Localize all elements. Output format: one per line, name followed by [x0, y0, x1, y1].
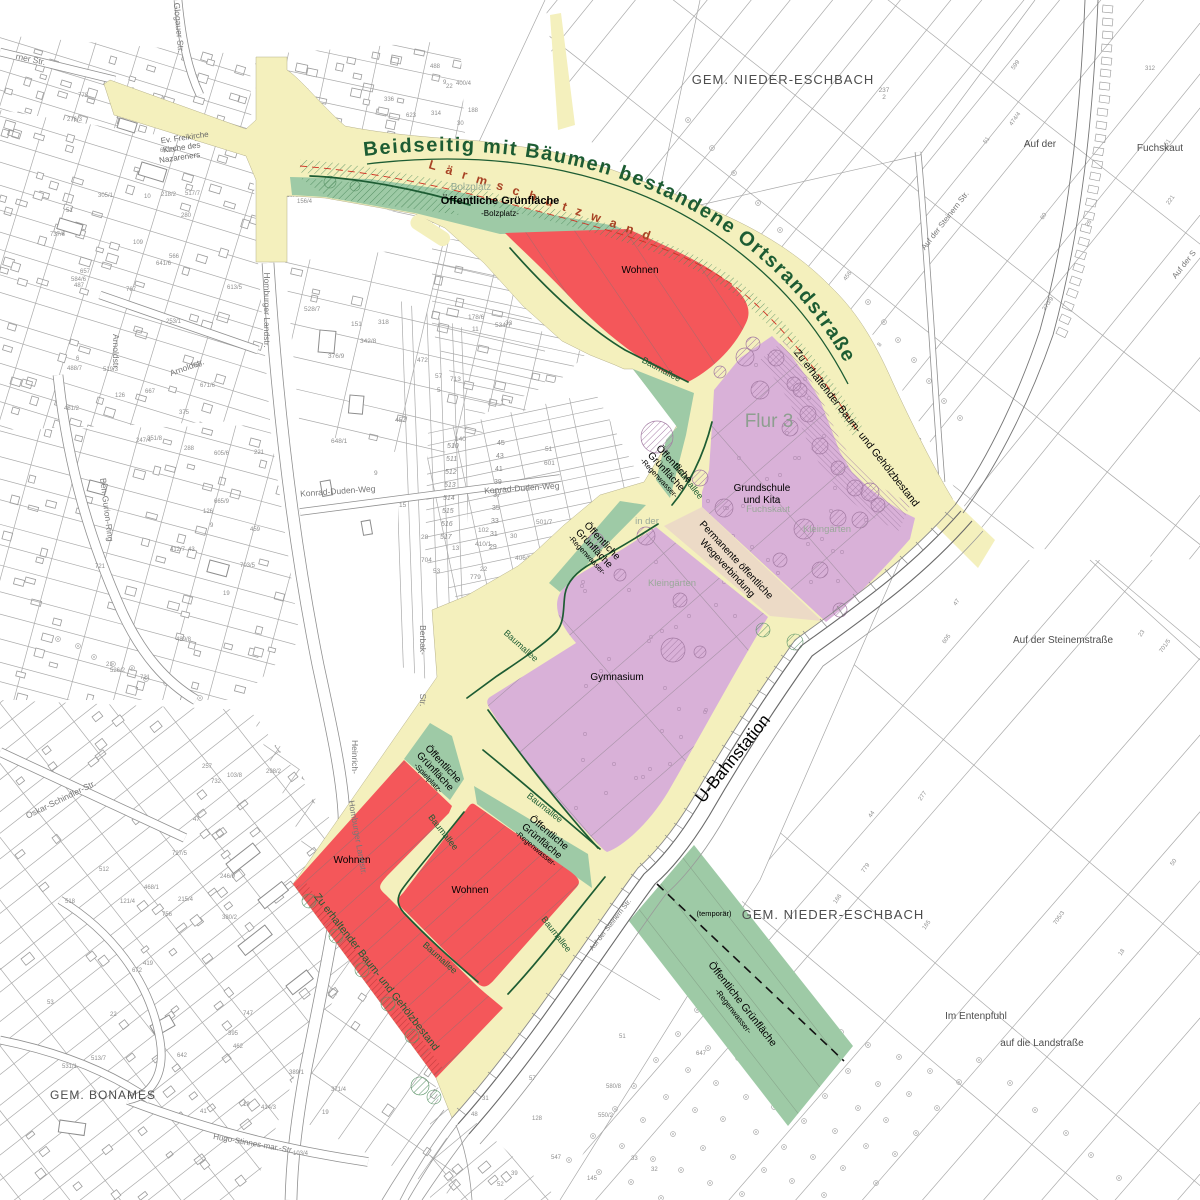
svg-text:721: 721 [140, 675, 151, 681]
svg-text:Auf der: Auf der [1024, 139, 1057, 150]
svg-text:2: 2 [882, 94, 886, 101]
svg-text:151: 151 [351, 321, 362, 328]
svg-text:156/4: 156/4 [297, 199, 313, 205]
svg-text:671/6: 671/6 [200, 383, 216, 389]
svg-text:Auf der Steinemstraße: Auf der Steinemstraße [1013, 635, 1113, 646]
svg-text:103/8: 103/8 [227, 773, 243, 779]
svg-text:580/8: 580/8 [606, 1084, 622, 1090]
svg-text:288: 288 [184, 446, 195, 452]
svg-text:GEM. NIEDER-ESCHBACH: GEM. NIEDER-ESCHBACH [692, 72, 875, 87]
svg-text:395: 395 [228, 1031, 239, 1037]
svg-text:30: 30 [510, 533, 518, 540]
svg-text:Fuchskaut: Fuchskaut [1137, 143, 1183, 154]
svg-text:51: 51 [545, 446, 553, 453]
svg-text:732: 732 [211, 779, 222, 785]
svg-text:737/6: 737/6 [50, 232, 66, 238]
svg-text:501/7: 501/7 [536, 519, 553, 526]
svg-text:in der: in der [635, 516, 659, 527]
svg-text:314: 314 [431, 111, 442, 117]
svg-text:218/2: 218/2 [161, 192, 177, 198]
svg-text:389/1: 389/1 [289, 1070, 305, 1076]
svg-text:481/2: 481/2 [64, 406, 80, 412]
svg-text:22: 22 [110, 1012, 117, 1018]
svg-text:Heinrich-: Heinrich- [350, 740, 360, 774]
svg-text:312: 312 [1145, 66, 1156, 72]
svg-text:39: 39 [511, 1171, 518, 1177]
svg-text:657: 657 [80, 269, 91, 275]
svg-text:30: 30 [457, 121, 464, 127]
svg-text:489/8: 489/8 [176, 637, 192, 643]
svg-text:257: 257 [202, 764, 213, 770]
svg-text:31: 31 [482, 1096, 489, 1102]
svg-text:15: 15 [399, 502, 407, 509]
svg-text:512: 512 [445, 469, 457, 476]
svg-text:57: 57 [435, 373, 443, 380]
svg-text:Im Entenpfuhl: Im Entenpfuhl [945, 1011, 1007, 1022]
svg-text:514: 514 [443, 495, 455, 502]
svg-text:414/3: 414/3 [261, 1105, 277, 1111]
svg-text:140: 140 [455, 436, 466, 443]
svg-text:472: 472 [417, 357, 428, 364]
svg-text:19: 19 [223, 591, 230, 597]
svg-text:126: 126 [115, 393, 126, 399]
svg-text:Bolzplatz: Bolzplatz [451, 182, 492, 193]
svg-text:336: 336 [384, 97, 395, 103]
svg-text:400/4: 400/4 [456, 81, 472, 87]
svg-text:53: 53 [47, 1000, 54, 1006]
svg-text:462: 462 [233, 1044, 244, 1050]
svg-text:513: 513 [444, 482, 456, 489]
svg-text:376/9: 376/9 [328, 353, 345, 360]
svg-text:Grundschule: Grundschule [734, 483, 791, 494]
svg-text:515: 515 [442, 508, 454, 515]
svg-text:642: 642 [177, 1053, 188, 1059]
svg-text:721: 721 [95, 564, 106, 570]
svg-text:103/4: 103/4 [293, 1151, 309, 1157]
svg-text:Kleingärten: Kleingärten [648, 578, 696, 589]
svg-text:221: 221 [254, 450, 265, 456]
svg-text:178/6: 178/6 [468, 314, 485, 321]
svg-text:280: 280 [181, 213, 192, 219]
svg-text:Flur 3: Flur 3 [745, 411, 794, 432]
svg-text:19: 19 [322, 1110, 329, 1116]
svg-text:526/2: 526/2 [110, 668, 126, 674]
svg-text:GEM. NIEDER-ESCHBACH: GEM. NIEDER-ESCHBACH [742, 907, 925, 922]
svg-text:380/2: 380/2 [222, 915, 238, 921]
svg-text:647: 647 [696, 1051, 707, 1057]
svg-text:126: 126 [203, 509, 214, 515]
svg-text:305/1: 305/1 [98, 193, 114, 199]
svg-text:672: 672 [132, 968, 143, 974]
svg-text:512: 512 [99, 867, 110, 873]
svg-text:41: 41 [495, 466, 503, 473]
svg-text:566: 566 [169, 254, 180, 260]
svg-text:511: 511 [446, 456, 457, 463]
svg-text:9: 9 [374, 470, 378, 477]
svg-text:Öffentliche Grünfläche: Öffentliche Grünfläche [441, 194, 560, 207]
svg-text:51: 51 [66, 208, 73, 214]
svg-text:375: 375 [179, 410, 190, 416]
svg-text:128: 128 [532, 1116, 543, 1122]
svg-text:727/5: 727/5 [172, 851, 188, 857]
svg-text:747: 747 [243, 1011, 254, 1017]
svg-text:703/5: 703/5 [240, 563, 256, 569]
svg-text:51: 51 [619, 1034, 626, 1040]
svg-text:459: 459 [250, 527, 261, 533]
svg-text:665/9: 665/9 [214, 499, 230, 505]
svg-text:246/9: 246/9 [220, 874, 236, 880]
svg-text:667: 667 [145, 389, 156, 395]
svg-text:Gymnasium: Gymnasium [590, 672, 643, 683]
svg-text:Str.: Str. [418, 694, 428, 707]
svg-text:43: 43 [188, 547, 195, 553]
svg-text:371/4: 371/4 [331, 1087, 347, 1093]
svg-text:29: 29 [489, 544, 497, 551]
svg-text:517/7: 517/7 [185, 191, 201, 197]
svg-text:641/6: 641/6 [156, 261, 172, 267]
svg-text:33: 33 [631, 1156, 638, 1162]
svg-text:767: 767 [126, 287, 137, 293]
svg-text:Fuchskaut: Fuchskaut [746, 504, 790, 515]
svg-text:550/2: 550/2 [598, 1113, 614, 1119]
svg-text:237: 237 [879, 87, 890, 94]
svg-text:GEM. BONAMES: GEM. BONAMES [50, 1088, 156, 1102]
svg-text:109: 109 [133, 240, 144, 246]
svg-text:Berbak-: Berbak- [418, 625, 428, 655]
svg-text:31: 31 [490, 531, 498, 538]
svg-text:318: 318 [378, 319, 389, 326]
svg-text:121/4: 121/4 [120, 899, 136, 905]
svg-text:342/8: 342/8 [360, 338, 377, 345]
svg-text:43: 43 [496, 453, 504, 460]
svg-text:33: 33 [505, 320, 513, 327]
svg-text:756: 756 [162, 912, 173, 918]
svg-text:19: 19 [243, 1102, 250, 1108]
svg-text:32: 32 [651, 1167, 658, 1173]
svg-text:102: 102 [478, 527, 489, 534]
svg-text:145: 145 [587, 1176, 598, 1182]
svg-text:518: 518 [65, 899, 76, 905]
svg-text:510: 510 [447, 443, 459, 450]
svg-text:419: 419 [143, 961, 154, 967]
svg-text:531/1: 531/1 [62, 1064, 78, 1070]
svg-text:21: 21 [106, 662, 113, 668]
svg-text:516: 516 [441, 521, 453, 528]
svg-text:5: 5 [437, 387, 441, 394]
svg-text:253/1: 253/1 [166, 319, 182, 325]
svg-text:623: 623 [406, 113, 417, 119]
svg-text:713: 713 [450, 376, 461, 383]
svg-text:Arnoldstr.: Arnoldstr. [111, 334, 121, 370]
svg-text:45: 45 [497, 440, 505, 447]
svg-text:Kleingärten: Kleingärten [803, 524, 851, 535]
svg-text:47: 47 [193, 817, 200, 823]
svg-text:487: 487 [74, 283, 85, 289]
svg-text:412/7: 412/7 [170, 547, 186, 553]
svg-text:276/3: 276/3 [67, 117, 83, 123]
svg-text:188: 188 [468, 108, 479, 114]
svg-text:-Bolzplatz-: -Bolzplatz- [481, 209, 519, 218]
svg-text:488: 488 [430, 64, 441, 70]
svg-text:605/6: 605/6 [214, 451, 230, 457]
svg-text:13: 13 [452, 545, 460, 552]
svg-text:468/1: 468/1 [144, 885, 160, 891]
svg-text:778: 778 [78, 93, 89, 99]
svg-text:22: 22 [480, 566, 488, 573]
svg-text:53: 53 [433, 568, 441, 575]
svg-text:584/6: 584/6 [71, 277, 87, 283]
svg-text:auf die Landstraße: auf die Landstraße [1000, 1038, 1084, 1049]
svg-text:779: 779 [470, 574, 481, 581]
svg-text:513/7: 513/7 [91, 1056, 107, 1062]
svg-text:528/7: 528/7 [304, 306, 321, 313]
svg-text:(temporär): (temporär) [696, 909, 732, 918]
svg-text:33: 33 [491, 518, 499, 525]
svg-text:35: 35 [492, 505, 500, 512]
svg-text:52: 52 [497, 1182, 504, 1188]
svg-text:488/7: 488/7 [67, 366, 83, 372]
svg-text:298/2: 298/2 [266, 769, 282, 775]
svg-text:28: 28 [421, 534, 429, 541]
svg-text:41: 41 [200, 1109, 207, 1115]
svg-text:613/5: 613/5 [227, 285, 243, 291]
svg-text:648/1: 648/1 [331, 438, 348, 445]
svg-text:Wohnen: Wohnen [621, 265, 658, 276]
svg-text:247/4: 247/4 [136, 438, 152, 444]
svg-text:11: 11 [472, 326, 479, 333]
svg-text:215/4: 215/4 [178, 897, 194, 903]
svg-text:Homburger Landstr.: Homburger Landstr. [262, 272, 272, 347]
svg-text:547: 547 [551, 1155, 562, 1161]
svg-text:457: 457 [395, 417, 406, 424]
svg-text:48: 48 [471, 1112, 478, 1118]
svg-text:22: 22 [446, 84, 453, 90]
svg-text:Wohnen: Wohnen [451, 885, 488, 896]
svg-text:704: 704 [421, 557, 432, 564]
svg-text:10: 10 [144, 194, 151, 200]
svg-text:601: 601 [544, 460, 555, 467]
svg-text:517: 517 [440, 534, 453, 541]
